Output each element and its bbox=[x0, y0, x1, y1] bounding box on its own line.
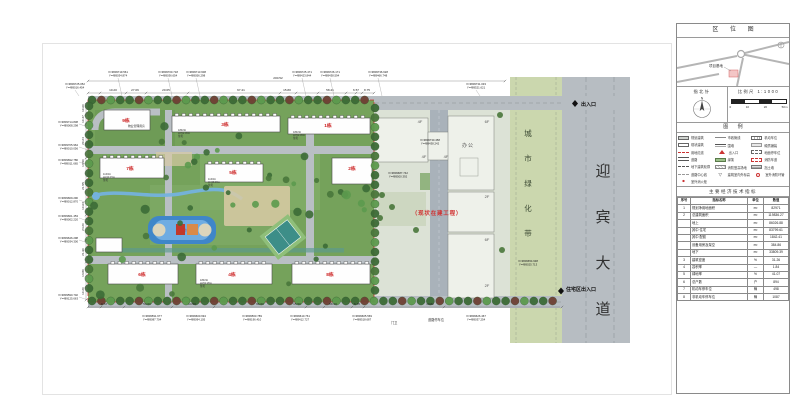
tree-mark bbox=[371, 162, 379, 170]
balcony-tooth bbox=[337, 262, 341, 265]
building-footprint bbox=[96, 238, 122, 252]
tree-mark bbox=[305, 210, 313, 218]
tree-mark bbox=[271, 200, 279, 208]
tree-mark bbox=[160, 122, 168, 130]
tree-mark bbox=[413, 227, 419, 233]
tree-mark bbox=[304, 96, 312, 104]
tree-mark bbox=[539, 297, 547, 305]
coord-leader bbox=[302, 78, 306, 96]
coordinate-label: Y=489423.844 bbox=[293, 74, 312, 78]
balcony-tooth bbox=[309, 262, 313, 265]
tree-mark bbox=[361, 96, 369, 104]
tree-mark bbox=[238, 297, 246, 305]
indicators-cell: 其中 住宅 bbox=[691, 227, 748, 234]
coordinate-label: Y=489087.704 bbox=[143, 318, 162, 322]
tree-mark bbox=[229, 96, 237, 104]
tree-mark bbox=[530, 297, 538, 305]
compass-title: 指北针 bbox=[677, 87, 727, 96]
tree-mark bbox=[361, 297, 369, 305]
balcony-tooth bbox=[273, 114, 277, 117]
tree-mark bbox=[252, 201, 259, 208]
tree-mark bbox=[116, 96, 124, 104]
tree-mark bbox=[342, 297, 350, 305]
dim-label: 15.80 bbox=[283, 88, 291, 92]
dim-label: 67.41 bbox=[237, 88, 245, 92]
balcony-tooth bbox=[222, 162, 226, 165]
balcony-tooth bbox=[358, 262, 362, 265]
coordinate-label: Y=489002.220 bbox=[60, 218, 79, 222]
indicators-cell: 83799.61 bbox=[764, 227, 789, 234]
scale-tick-label: 0 bbox=[730, 105, 732, 109]
balcony-tooth bbox=[175, 114, 179, 117]
indicators-cell bbox=[678, 227, 691, 234]
coordinate-label: Y=489518.687 bbox=[353, 318, 372, 322]
coord-leader bbox=[196, 78, 200, 96]
entry-legend-icon bbox=[719, 150, 725, 154]
indicators-cell: 其中 配套 bbox=[691, 234, 748, 241]
dim-label: 24.20 bbox=[81, 223, 85, 231]
firelane-legend-icon bbox=[751, 158, 762, 162]
tree-mark bbox=[116, 297, 124, 305]
tree-mark bbox=[210, 96, 218, 104]
balcony-tooth bbox=[255, 262, 259, 265]
pool-structure bbox=[187, 224, 198, 235]
legend-column: 机动车位硬质铺装地面停车位消防车道挡土墙室外消防环管 bbox=[751, 134, 788, 185]
legend-item-label: 硬质铺装 bbox=[764, 143, 777, 148]
tree-mark bbox=[201, 96, 209, 104]
legend-item-label: 室外消防环管 bbox=[765, 172, 784, 177]
legend-item: 消防车道 bbox=[751, 156, 788, 163]
indicators-cell: 8 bbox=[678, 294, 691, 301]
center-legend-icon bbox=[678, 174, 689, 175]
legend-item-label: 用地红线 bbox=[691, 150, 704, 155]
balcony-tooth bbox=[146, 262, 150, 265]
tree-mark bbox=[295, 96, 303, 104]
indicators-cell: 建筑密度 bbox=[691, 257, 748, 264]
building-number-label: 5栋 bbox=[229, 169, 237, 176]
balcony-tooth bbox=[231, 114, 235, 117]
exist-legend-icon bbox=[678, 143, 689, 147]
location-map: 项目基地 bbox=[677, 38, 789, 87]
tree-mark bbox=[520, 297, 528, 305]
balcony-tooth bbox=[291, 116, 295, 119]
tree-mark bbox=[314, 178, 319, 183]
building-info-label: 住宅 bbox=[200, 284, 206, 288]
plan-legend-icon bbox=[678, 136, 689, 140]
tree-mark bbox=[371, 104, 379, 112]
legend-item: 地面停车位 bbox=[751, 149, 788, 156]
indicators-row: 地上m²86026.88 bbox=[678, 220, 789, 227]
building-info-label: 住宅 bbox=[178, 134, 184, 138]
legend-item: 硬质铺装 bbox=[751, 141, 788, 148]
balcony-tooth bbox=[333, 116, 337, 119]
tree-mark bbox=[229, 297, 237, 305]
balcony-tooth bbox=[323, 262, 327, 265]
legend-item-label: 消防登高场地 bbox=[728, 165, 747, 170]
coordinate-label: Y=489412.727 bbox=[291, 318, 310, 322]
tree-mark bbox=[351, 96, 359, 104]
tree-mark bbox=[141, 205, 150, 214]
green-belt-label: 市 bbox=[524, 153, 532, 163]
dim-label: 6.70 bbox=[354, 302, 360, 306]
tree-mark bbox=[286, 281, 291, 286]
indicators-cell: m² bbox=[748, 212, 764, 219]
tree-mark bbox=[497, 112, 503, 118]
indicators-header-row: 序号指标名称单位数值 bbox=[678, 198, 789, 205]
balcony-tooth bbox=[241, 262, 245, 265]
tree-mark bbox=[107, 297, 115, 305]
coordinate-label: Y=489008.298 bbox=[60, 124, 79, 128]
legend-column: 规划建筑现状建筑用地红线道路地下建筑轮廓道路中心线室外消火栓 bbox=[678, 134, 715, 185]
tree-mark bbox=[211, 245, 217, 251]
indicators-cell: m² bbox=[748, 227, 764, 234]
existing-green-patch bbox=[420, 173, 430, 190]
legend-item: 消防登高场地 bbox=[715, 164, 752, 171]
indicators-row: 2总建筑面积m²119836.27 bbox=[678, 212, 789, 219]
legend-item: 挡土墙 bbox=[751, 164, 788, 171]
indicators-cell: m² bbox=[748, 220, 764, 227]
property-note: 物业管理用房 bbox=[128, 124, 145, 128]
indicators-cell: 82971 bbox=[764, 205, 789, 212]
indicators-cell bbox=[678, 220, 691, 227]
balcony-tooth bbox=[243, 162, 247, 165]
balcony-tooth bbox=[266, 114, 270, 117]
floor-count-label: 4F bbox=[444, 154, 449, 159]
indicators-cell: 总建筑面积 bbox=[691, 212, 748, 219]
hydrant-legend-icon bbox=[678, 179, 689, 183]
dim-label: 6.57 bbox=[353, 88, 359, 92]
balcony-tooth bbox=[124, 156, 128, 159]
road-name-label: 迎 bbox=[595, 163, 610, 180]
tree-mark bbox=[185, 162, 192, 169]
indicators-row: 其中 配套m²1842.41 bbox=[678, 234, 789, 241]
legend-column: 市政管线围墙出入口绿篱消防登高场地建筑室内外标高 bbox=[715, 134, 752, 185]
tree-mark bbox=[314, 257, 319, 262]
balcony-tooth bbox=[111, 262, 115, 265]
indicators-cell: 119836.27 bbox=[764, 212, 789, 219]
wall-legend-icon bbox=[715, 144, 726, 147]
balcony-tooth bbox=[153, 262, 157, 265]
indicators-cell: 1087 bbox=[764, 294, 789, 301]
park-legend-icon bbox=[751, 136, 762, 140]
tree-mark bbox=[301, 153, 309, 161]
tree-mark bbox=[371, 171, 379, 179]
coord-leader bbox=[476, 90, 480, 96]
indicators-row: 地下m²33809.39 bbox=[678, 249, 789, 256]
indicators-cell: 规划净用地面积 bbox=[691, 205, 748, 212]
tree-mark bbox=[417, 297, 425, 305]
tree-mark bbox=[266, 175, 272, 181]
green-belt-label: 化 bbox=[524, 203, 532, 213]
legend-item: 机动车位 bbox=[751, 134, 788, 141]
balcony-tooth bbox=[208, 162, 212, 165]
balcony-tooth bbox=[344, 262, 348, 265]
legend-item-label: 市政管线 bbox=[728, 135, 741, 140]
balcony-tooth bbox=[259, 114, 263, 117]
indicators-cell: 4 bbox=[678, 264, 691, 271]
tree-mark bbox=[154, 96, 162, 104]
building-number-label: 8栋 bbox=[326, 271, 334, 278]
coord-leader bbox=[378, 78, 382, 96]
dim-label: 13.80 bbox=[81, 269, 85, 277]
indicators-title: 主要经济技术指标 bbox=[677, 187, 789, 197]
balcony-tooth bbox=[238, 114, 242, 117]
tree-mark bbox=[371, 133, 379, 141]
coord-leader bbox=[75, 90, 79, 96]
pave-legend-icon bbox=[751, 143, 762, 147]
indicators-cell: 机动车停车位 bbox=[691, 286, 748, 293]
indicators-cell: 辆 bbox=[748, 286, 764, 293]
tree-mark bbox=[379, 192, 385, 198]
balcony-tooth bbox=[262, 262, 266, 265]
tree-mark bbox=[97, 96, 105, 104]
balcony-tooth bbox=[298, 116, 302, 119]
building-number-label: 3栋 bbox=[221, 121, 229, 128]
scale-bar bbox=[731, 99, 787, 104]
coordinate-label: Y=489012.870 bbox=[60, 200, 79, 204]
balcony-tooth bbox=[203, 114, 207, 117]
legend-item: 绿篱 bbox=[715, 156, 752, 163]
indicators-cell: 单位 bbox=[748, 198, 764, 205]
coord-leader bbox=[330, 78, 334, 96]
legend-item: 道路 bbox=[678, 156, 715, 163]
tree-mark bbox=[408, 297, 416, 305]
balcony-tooth bbox=[182, 114, 186, 117]
roundabout-icon bbox=[738, 51, 745, 58]
indicators-cell: 地下 bbox=[691, 249, 748, 256]
indicators-cell bbox=[678, 234, 691, 241]
balcony-tooth bbox=[210, 114, 214, 117]
tree-mark bbox=[173, 96, 181, 104]
entrance-bottom-label: 住宅区出入口 bbox=[566, 286, 596, 293]
dim-label: 10.20 bbox=[81, 287, 85, 295]
scale-cell: 比例尺 1:1000 0102050m bbox=[728, 87, 789, 122]
indicators-cell: 辆 bbox=[748, 294, 764, 301]
legend-item-label: 规划建筑 bbox=[691, 135, 704, 140]
green-belt-label: 城 bbox=[524, 129, 532, 138]
coordinate-label: Y=489010.056 bbox=[60, 147, 79, 151]
tree-mark bbox=[362, 184, 370, 192]
indicators-cell bbox=[678, 249, 691, 256]
coord-leader bbox=[118, 78, 122, 96]
road-name-label: 宾 bbox=[595, 209, 610, 226]
tree-mark bbox=[220, 297, 228, 305]
road-legend-icon bbox=[678, 157, 689, 161]
tree-mark bbox=[358, 200, 365, 207]
balcony-tooth bbox=[159, 156, 163, 159]
balcony-tooth bbox=[110, 156, 114, 159]
tree-mark bbox=[371, 229, 379, 237]
tree-mark bbox=[464, 297, 472, 305]
balcony-tooth bbox=[302, 262, 306, 265]
dim-label: 27.06 bbox=[131, 88, 139, 92]
pool-deck bbox=[199, 224, 212, 237]
scale-tick-label: 10 bbox=[746, 105, 749, 109]
indicators-cell: 5 bbox=[678, 271, 691, 278]
tree-mark bbox=[248, 297, 256, 305]
tree-mark bbox=[177, 220, 183, 226]
tree-mark bbox=[235, 133, 242, 140]
indicators-cell: 非机动车停车位 bbox=[691, 294, 748, 301]
tree-mark bbox=[291, 181, 296, 186]
under-legend-icon bbox=[678, 166, 689, 167]
legend-item: 规划建筑 bbox=[678, 134, 715, 141]
existing-green-patch bbox=[378, 192, 426, 226]
tree-mark bbox=[323, 243, 328, 248]
tree-mark bbox=[201, 297, 209, 305]
tree-mark bbox=[398, 297, 406, 305]
coordinate-label: Y=489056.298 bbox=[187, 74, 206, 78]
existing-building bbox=[448, 234, 494, 298]
legend-item-label: 地下建筑轮廓 bbox=[691, 164, 710, 169]
guard-label: 门卫 bbox=[391, 320, 398, 325]
indicators-cell: 384.86 bbox=[764, 242, 789, 249]
svg-text:N: N bbox=[701, 97, 704, 101]
tree-mark bbox=[314, 96, 322, 104]
fireground-legend-icon bbox=[715, 165, 726, 169]
tree-mark bbox=[215, 148, 220, 153]
tree-mark bbox=[371, 258, 379, 266]
tree-mark bbox=[191, 96, 199, 104]
tree-mark bbox=[473, 297, 481, 305]
balcony-tooth bbox=[257, 162, 261, 165]
tree-mark bbox=[247, 227, 252, 232]
tree-mark bbox=[371, 114, 379, 122]
indicators-cell: m² bbox=[748, 249, 764, 256]
building-number-label: 2栋 bbox=[348, 165, 356, 172]
tree-mark bbox=[285, 96, 293, 104]
tree-mark bbox=[342, 96, 350, 104]
floor-count-label: 4F bbox=[418, 119, 423, 124]
balcony-tooth bbox=[354, 116, 358, 119]
balcony-tooth bbox=[319, 116, 323, 119]
coordinate-label: Y=489011.665 bbox=[60, 162, 79, 166]
dim-label: 10.47 bbox=[81, 115, 85, 123]
tree-mark bbox=[492, 297, 500, 305]
tree-mark bbox=[187, 205, 193, 211]
tree-mark bbox=[96, 290, 105, 299]
indicators-cell: m² bbox=[748, 234, 764, 241]
tree-mark bbox=[144, 96, 152, 104]
balcony-tooth bbox=[224, 114, 228, 117]
building-number-label: 6栋 bbox=[138, 271, 146, 278]
legend-item: 室外消火栓 bbox=[678, 178, 715, 185]
indicators-row: 设备用房及架空m²384.86 bbox=[678, 242, 789, 249]
building-info-label: 住宅 bbox=[103, 178, 109, 182]
scale-title: 比例尺 1:1000 bbox=[728, 87, 789, 96]
location-map-title: 区 位 图 bbox=[677, 24, 789, 38]
indicators-cell: 3 bbox=[678, 257, 691, 264]
tree-mark bbox=[276, 297, 284, 305]
pool-deck bbox=[153, 224, 166, 237]
balcony-tooth bbox=[199, 262, 203, 265]
tree-mark bbox=[154, 297, 162, 305]
indicators-cell: 绿地率 bbox=[691, 271, 748, 278]
balcony-tooth bbox=[152, 156, 156, 159]
indicators-row: 3建筑密度%31.26 bbox=[678, 257, 789, 264]
legend-item: 地下建筑轮廓 bbox=[678, 163, 715, 170]
building-number-label: 4栋 bbox=[228, 271, 236, 278]
tree-mark bbox=[143, 233, 150, 240]
floor-count-label: 6F bbox=[485, 237, 490, 242]
balcony-tooth bbox=[250, 162, 254, 165]
balcony-tooth bbox=[145, 156, 149, 159]
dim-label: 21.90 bbox=[81, 248, 85, 256]
tree-mark bbox=[327, 191, 334, 198]
office-label: 办公 bbox=[462, 142, 474, 149]
road-name-label: 大 bbox=[595, 255, 610, 272]
site-marker bbox=[729, 70, 738, 77]
legend-item-label: 出入口 bbox=[729, 150, 739, 155]
tree-mark bbox=[455, 297, 463, 305]
indicators-cell: 户 bbox=[748, 279, 764, 286]
indicators-row: 7机动车停车位辆498 bbox=[678, 286, 789, 293]
tree-mark bbox=[389, 204, 395, 210]
indicators-cell: 31.26 bbox=[764, 257, 789, 264]
hedge-strip bbox=[118, 248, 344, 253]
coordinate-label: Y=489016.454 bbox=[66, 86, 85, 90]
balcony-tooth bbox=[229, 162, 233, 165]
tree-mark bbox=[371, 123, 379, 131]
balcony-tooth bbox=[196, 114, 200, 117]
indicators-cell: 1 bbox=[678, 205, 691, 212]
tree-mark bbox=[371, 152, 379, 160]
tree-mark bbox=[267, 297, 275, 305]
balcony-tooth bbox=[215, 162, 219, 165]
indicators-cell: 总户数 bbox=[691, 279, 748, 286]
indicators-row: 1规划净用地面积m²82971 bbox=[678, 205, 789, 212]
tree-mark bbox=[276, 96, 284, 104]
coord-leader bbox=[168, 78, 172, 96]
building-number-label: 7栋 bbox=[126, 165, 134, 172]
building-number-label: 9栋 bbox=[122, 117, 130, 124]
dim-label: 8.75 bbox=[364, 88, 370, 92]
dim-label: 9.72 bbox=[101, 302, 107, 306]
balcony-tooth bbox=[167, 262, 171, 265]
legend-item-label: 道路 bbox=[691, 157, 697, 162]
legend-item-label: 挡土墙 bbox=[764, 165, 774, 170]
tree-mark bbox=[238, 96, 246, 104]
scale-tick-label: 50m bbox=[782, 105, 788, 109]
legend-item: 室外消防环管 bbox=[751, 171, 788, 178]
site-marker-label: 项目基地 bbox=[709, 63, 723, 68]
tree-mark bbox=[126, 96, 134, 104]
indicators-row: 5绿地率%41.07 bbox=[678, 271, 789, 278]
balcony-tooth bbox=[361, 116, 365, 119]
tree-mark bbox=[126, 297, 134, 305]
building-info-label: 住宅 bbox=[208, 183, 214, 187]
green-belt-label: 带 bbox=[524, 229, 532, 238]
dim-label: 15.50 bbox=[293, 302, 301, 306]
balcony-tooth bbox=[312, 116, 316, 119]
tree-mark bbox=[371, 142, 379, 150]
balcony-tooth bbox=[189, 114, 193, 117]
tree-mark bbox=[90, 202, 98, 210]
floor-count-label: 2F bbox=[485, 194, 490, 199]
indicators-cell: 894 bbox=[764, 279, 789, 286]
tree-mark bbox=[220, 96, 228, 104]
indicators-cell: 1842.41 bbox=[764, 234, 789, 241]
indicators-cell: 41.07 bbox=[764, 271, 789, 278]
indicators-cell: 1.84 bbox=[764, 264, 789, 271]
legend-item-label: 机动车位 bbox=[764, 135, 777, 140]
balcony-tooth bbox=[252, 114, 256, 117]
indicators-cell: % bbox=[748, 257, 764, 264]
tree-mark bbox=[371, 190, 379, 198]
balcony-tooth bbox=[365, 262, 369, 265]
construction-note: （现状在建工程） bbox=[412, 209, 462, 217]
tree-mark bbox=[135, 96, 143, 104]
